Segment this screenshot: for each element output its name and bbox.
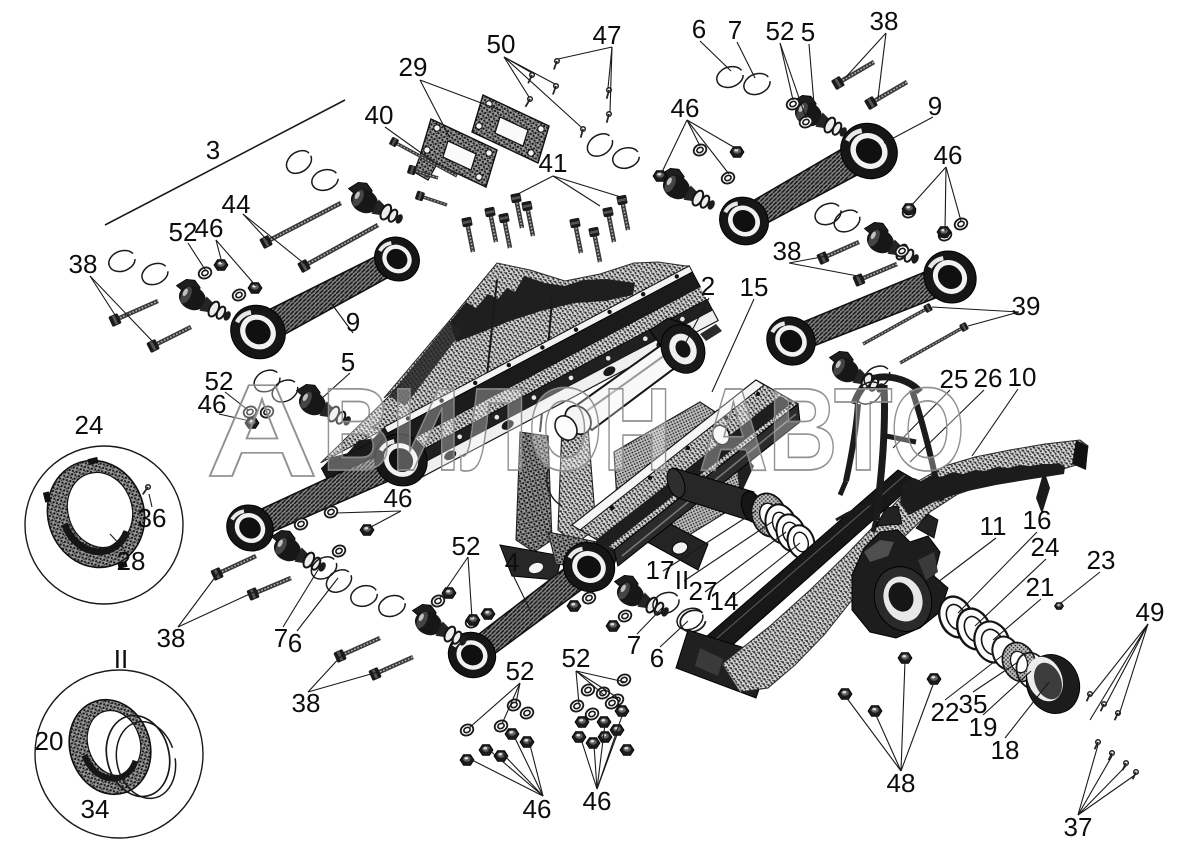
svg-text:46: 46 (384, 483, 413, 513)
svg-text:21: 21 (1026, 572, 1055, 602)
svg-text:23: 23 (1087, 545, 1116, 575)
svg-text:5: 5 (341, 347, 355, 377)
svg-text:14: 14 (710, 586, 739, 616)
svg-text:47: 47 (593, 20, 622, 50)
svg-text:3: 3 (206, 135, 220, 165)
svg-text:ВИЛОН АВТО: ВИЛОН АВТО (322, 364, 965, 496)
svg-text:28: 28 (117, 546, 146, 576)
svg-text:11: 11 (980, 511, 1007, 541)
svg-text:37: 37 (1064, 812, 1093, 842)
svg-text:24: 24 (1031, 532, 1060, 562)
svg-text:9: 9 (346, 307, 360, 337)
svg-text:5: 5 (801, 17, 815, 47)
svg-text:38: 38 (157, 623, 186, 653)
svg-text:6: 6 (692, 14, 706, 44)
svg-text:24: 24 (75, 410, 104, 440)
svg-text:2: 2 (701, 271, 715, 301)
svg-text:46: 46 (934, 140, 963, 170)
svg-text:46: 46 (523, 794, 552, 824)
svg-text:52: 52 (562, 643, 591, 673)
svg-text:7: 7 (728, 15, 742, 45)
svg-text:39: 39 (1012, 291, 1041, 321)
svg-text:52: 52 (452, 531, 481, 561)
svg-text:6: 6 (650, 643, 664, 673)
svg-text:46: 46 (195, 213, 224, 243)
svg-text:25: 25 (940, 364, 969, 394)
svg-text:46: 46 (671, 93, 700, 123)
svg-text:38: 38 (773, 236, 802, 266)
svg-text:40: 40 (365, 100, 394, 130)
svg-text:18: 18 (991, 735, 1020, 765)
svg-text:50: 50 (487, 29, 516, 59)
svg-text:22: 22 (931, 697, 960, 727)
svg-text:7: 7 (627, 630, 641, 660)
svg-text:9: 9 (928, 91, 942, 121)
svg-text:52: 52 (766, 16, 795, 46)
svg-text:38: 38 (870, 6, 899, 36)
svg-text:29: 29 (399, 52, 428, 82)
svg-text:20: 20 (35, 726, 64, 756)
svg-text:38: 38 (69, 249, 98, 279)
svg-text:4: 4 (505, 547, 519, 577)
svg-text:34: 34 (81, 794, 110, 824)
svg-text:6: 6 (288, 628, 302, 658)
svg-text:41: 41 (539, 148, 568, 178)
svg-text:7: 7 (274, 623, 288, 653)
svg-text:16: 16 (1023, 505, 1052, 535)
svg-text:52: 52 (169, 217, 198, 247)
svg-text:49: 49 (1136, 597, 1165, 627)
svg-text:26: 26 (974, 363, 1003, 393)
svg-text:II: II (114, 644, 128, 674)
svg-text:17: 17 (646, 555, 675, 585)
svg-text:II: II (675, 565, 689, 595)
svg-text:48: 48 (887, 768, 916, 798)
svg-text:52: 52 (506, 656, 535, 686)
svg-text:38: 38 (292, 688, 321, 718)
svg-text:36: 36 (138, 503, 167, 533)
svg-text:46: 46 (198, 389, 227, 419)
svg-text:46: 46 (583, 786, 612, 816)
svg-text:44: 44 (222, 189, 251, 219)
svg-text:15: 15 (740, 272, 769, 302)
svg-text:10: 10 (1008, 362, 1037, 392)
